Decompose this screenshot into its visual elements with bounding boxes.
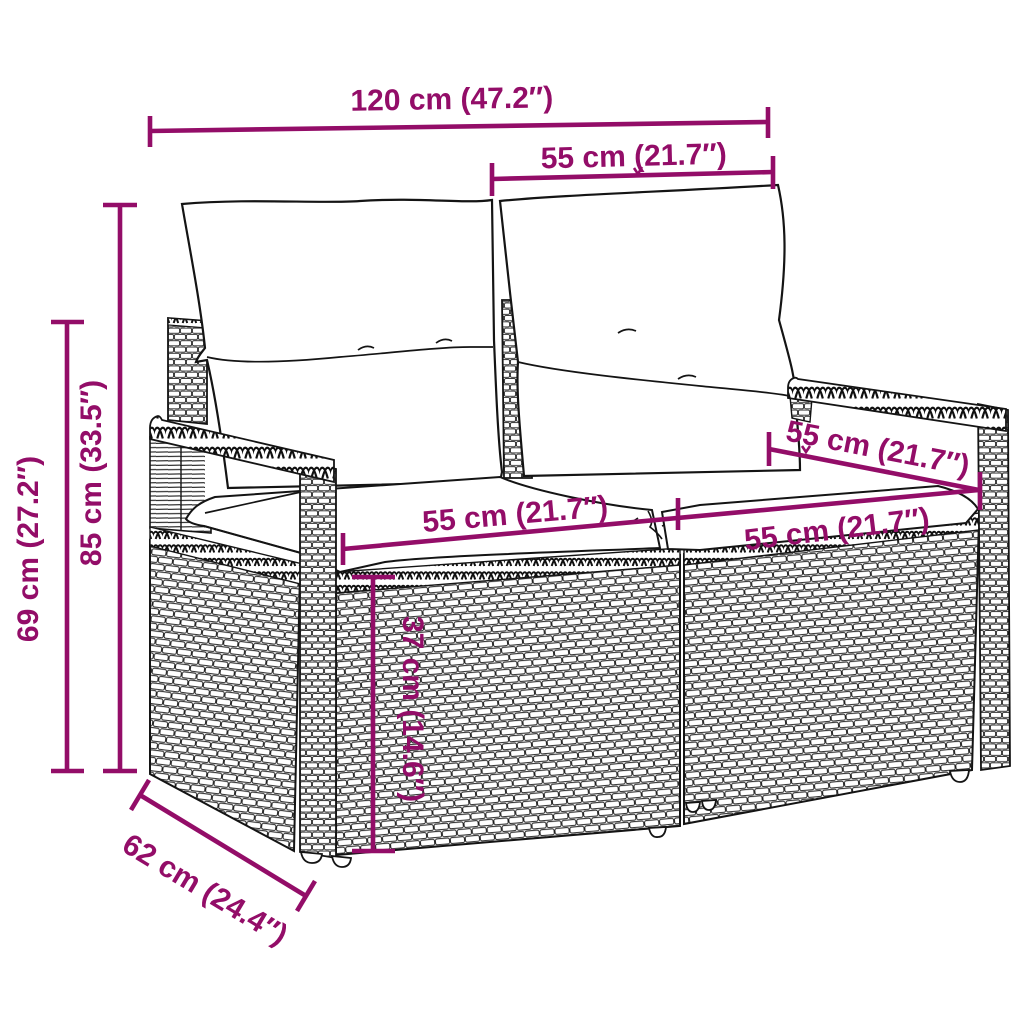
svg-text:120 cm (47.2″): 120 cm (47.2″) <box>350 81 553 118</box>
svg-text:37 cm (14.6″): 37 cm (14.6″) <box>396 616 429 802</box>
svg-text:85 cm (33.5″): 85 cm (33.5″) <box>75 380 108 566</box>
svg-text:69 cm (27.2″): 69 cm (27.2″) <box>12 456 45 642</box>
